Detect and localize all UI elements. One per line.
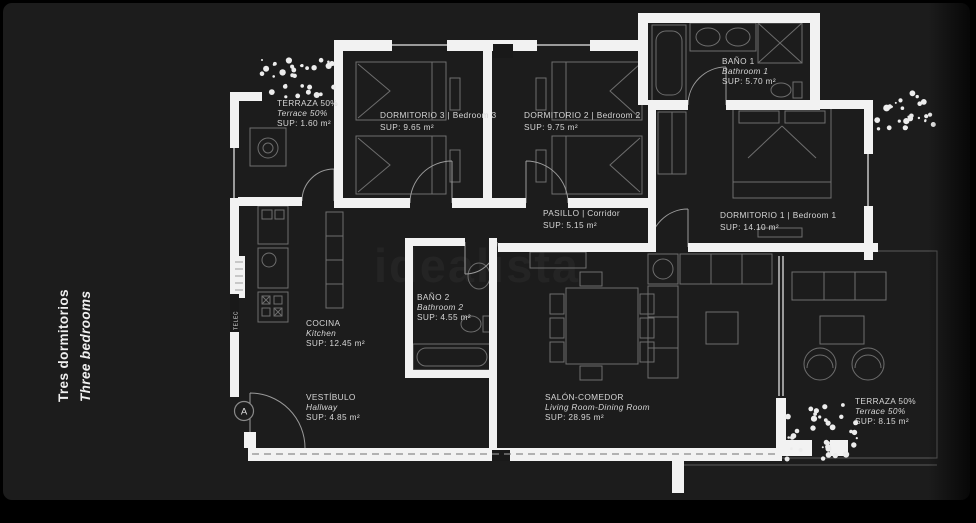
wall-segment bbox=[452, 198, 526, 208]
entrance-marker-letter: A bbox=[241, 407, 248, 418]
wall-segment bbox=[638, 13, 820, 23]
room-name: DORMITORIO 3 | Bedroom 3 bbox=[380, 110, 496, 120]
utility-label: TELEC bbox=[234, 311, 240, 330]
vegetation-dot bbox=[918, 117, 920, 119]
vegetation-dot bbox=[279, 69, 285, 75]
room-name: BAÑO 1 bbox=[722, 56, 755, 66]
wall-segment bbox=[405, 238, 465, 246]
vegetation-dot bbox=[895, 102, 897, 104]
wall-segment bbox=[447, 40, 537, 51]
vegetation-dot bbox=[261, 59, 263, 61]
vegetation-dot bbox=[901, 106, 905, 110]
wall-notch bbox=[492, 450, 510, 461]
vegetation-dot bbox=[286, 57, 292, 63]
vegetation-dot bbox=[790, 435, 794, 439]
vegetation-dot bbox=[300, 64, 303, 67]
shaft bbox=[493, 44, 513, 58]
wall-segment bbox=[648, 100, 656, 252]
vegetation-dot bbox=[887, 125, 892, 130]
vegetation-dot bbox=[305, 66, 309, 70]
vegetation-dot bbox=[841, 403, 845, 407]
vegetation-dot bbox=[888, 104, 893, 109]
vegetation-dot bbox=[307, 85, 312, 90]
wall-segment bbox=[786, 440, 812, 456]
vegetation-dot bbox=[909, 114, 914, 119]
vegetation-dot bbox=[851, 442, 856, 447]
vegetation-dot bbox=[826, 452, 832, 458]
vegetation-dot bbox=[833, 453, 838, 458]
room-area: SUP: 4.55 m² bbox=[417, 312, 471, 322]
vegetation-dot bbox=[916, 95, 919, 98]
wall-segment bbox=[483, 51, 492, 208]
vegetation-dot bbox=[290, 73, 294, 77]
vegetation-dot bbox=[821, 456, 825, 460]
wall-segment bbox=[498, 243, 650, 252]
floorplan-image: idealista Tres dormitorios Three bedroom… bbox=[0, 0, 976, 523]
vegetation-dot bbox=[290, 65, 294, 69]
room-name: COCINA bbox=[306, 318, 340, 328]
room-name-en: Hallway bbox=[306, 402, 338, 412]
vegetation-dot bbox=[273, 62, 277, 66]
room-area: SUP: 9.75 m² bbox=[524, 122, 578, 132]
room-name: TERRAZA 50% bbox=[855, 396, 916, 406]
wall-segment bbox=[864, 100, 873, 154]
vegetation-dot bbox=[810, 425, 815, 430]
room-area: SUP: 14.10 m² bbox=[720, 222, 779, 232]
room-name: PASILLO | Corridor bbox=[543, 208, 620, 218]
vegetation-dot bbox=[331, 85, 336, 90]
plan-title-spanish: Tres dormitorios bbox=[56, 289, 71, 402]
vegetation-dot bbox=[839, 415, 843, 419]
vegetation-dot bbox=[852, 430, 857, 435]
vegetation-dot bbox=[874, 117, 880, 123]
vegetation-dot bbox=[856, 437, 858, 439]
wall-segment bbox=[810, 100, 870, 109]
vegetation-dot bbox=[830, 424, 836, 430]
wall-segment bbox=[489, 238, 497, 458]
wall-segment bbox=[726, 100, 820, 110]
vegetation-dot bbox=[822, 404, 827, 409]
vegetation-dot bbox=[917, 101, 922, 106]
vegetation-dot bbox=[799, 448, 803, 452]
room-area: SUP: 5.15 m² bbox=[543, 220, 597, 230]
vegetation-dot bbox=[295, 94, 300, 99]
vegetation-dot bbox=[790, 447, 793, 450]
vegetation-dot bbox=[898, 120, 901, 123]
wall-segment bbox=[568, 198, 648, 208]
wall-segment bbox=[776, 398, 786, 456]
room-name: DORMITORIO 1 | Bedroom 1 bbox=[720, 210, 836, 220]
vegetation-dot bbox=[824, 440, 829, 445]
room-name-en: Bathroom 2 bbox=[417, 302, 463, 312]
vegetation-dot bbox=[822, 446, 824, 448]
wall-segment bbox=[688, 243, 878, 252]
vegetation-dot bbox=[785, 414, 791, 420]
vegetation-dot bbox=[811, 416, 817, 422]
room-area: SUP: 4.85 m² bbox=[306, 412, 360, 422]
room-area: SUP: 9.65 m² bbox=[380, 122, 434, 132]
wall-segment bbox=[405, 370, 497, 378]
vegetation-dot bbox=[826, 446, 832, 452]
wall-segment bbox=[810, 13, 820, 110]
vegetation-dot bbox=[269, 89, 275, 95]
vegetation-dot bbox=[905, 126, 908, 129]
room-name: BAÑO 2 bbox=[417, 292, 450, 302]
vegetation-dot bbox=[787, 436, 790, 439]
vegetation-dot bbox=[260, 71, 265, 76]
vegetation-dot bbox=[785, 457, 790, 462]
wall-segment bbox=[405, 238, 413, 378]
vegetation-dot bbox=[898, 98, 902, 102]
entrance-marker: A bbox=[235, 402, 254, 421]
vegetation-dot bbox=[813, 412, 817, 416]
room-name-en: Bathroom 1 bbox=[722, 66, 768, 76]
vegetation-dot bbox=[311, 65, 316, 70]
room-area: SUP: 1.60 m² bbox=[277, 118, 331, 128]
vegetation-dot bbox=[849, 430, 853, 434]
room-area: SUP: 28.95 m² bbox=[545, 412, 604, 422]
room-name-en: Living Room-Dining Room bbox=[545, 402, 650, 412]
vegetation-dot bbox=[284, 95, 287, 98]
vegetation-dot bbox=[263, 66, 269, 72]
vegetation-dot bbox=[327, 61, 330, 64]
room-name: SALÓN-COMEDOR bbox=[545, 392, 624, 402]
wall-segment bbox=[230, 92, 262, 101]
room-name: VESTÍBULO bbox=[306, 392, 356, 402]
wall-segment bbox=[638, 13, 648, 105]
wall-segment bbox=[334, 198, 410, 208]
room-area: SUP: 8.15 m² bbox=[855, 416, 909, 426]
vegetation-dot bbox=[910, 90, 916, 96]
floorplan-svg: idealista Tres dormitorios Three bedroom… bbox=[0, 0, 976, 523]
vegetation-dot bbox=[795, 429, 800, 434]
vegetation-dot bbox=[924, 119, 926, 121]
room-name-en: Kitchen bbox=[306, 328, 336, 338]
room-name: TERRAZA 50% bbox=[277, 98, 338, 108]
vegetation-dot bbox=[853, 420, 858, 425]
plan-title-english: Three bedrooms bbox=[78, 291, 93, 402]
vegetation-dot bbox=[826, 421, 831, 426]
wall-segment bbox=[244, 432, 256, 448]
wall-segment bbox=[334, 40, 343, 208]
vegetation-dot bbox=[283, 84, 288, 89]
vegetation-dot bbox=[818, 415, 821, 418]
vegetation-dot bbox=[314, 92, 320, 98]
wall-segment bbox=[238, 197, 302, 206]
vegetation-dot bbox=[843, 451, 849, 457]
room-area: SUP: 12.45 m² bbox=[306, 338, 365, 348]
room-name: DORMITORIO 2 | Bedroom 2 bbox=[524, 110, 640, 120]
vegetation-dot bbox=[300, 84, 304, 88]
vegetation-dot bbox=[272, 75, 275, 78]
vegetation-dot bbox=[331, 62, 335, 66]
room-name-en: Terrace 50% bbox=[277, 108, 328, 118]
room-area: SUP: 5.70 m² bbox=[722, 76, 776, 86]
vegetation-dot bbox=[877, 127, 880, 130]
right-vignette bbox=[928, 3, 973, 500]
vegetation-dot bbox=[306, 90, 311, 95]
vegetation-dot bbox=[924, 114, 928, 118]
room-name-en: Terrace 50% bbox=[855, 406, 906, 416]
vegetation-dot bbox=[808, 407, 813, 412]
vegetation-dot bbox=[319, 58, 324, 63]
